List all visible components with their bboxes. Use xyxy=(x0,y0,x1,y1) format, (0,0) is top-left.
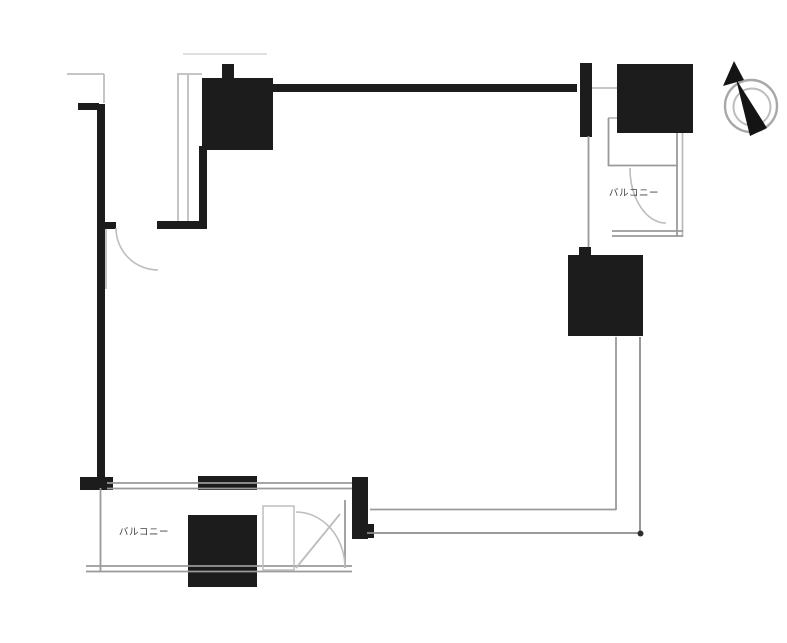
wall-interior-stub xyxy=(100,222,116,229)
door-leaf xyxy=(296,514,340,568)
wall-top xyxy=(268,84,577,92)
balcony-label-bottom-left: バルコニー xyxy=(119,527,169,538)
black-walls-and-pillars xyxy=(78,63,693,587)
door-swing-arc-entry xyxy=(116,228,158,270)
wall-below-pillar-top-left xyxy=(199,146,207,228)
north-arrow-icon xyxy=(723,61,777,136)
door-frame xyxy=(263,506,294,570)
floor-plan-canvas: バルコニー バルコニー xyxy=(0,0,787,643)
pillar-top-left-tab xyxy=(222,64,234,79)
wall-corner-bar-foot xyxy=(366,524,374,538)
wall-left xyxy=(97,104,105,490)
pillar-top-right xyxy=(617,64,693,133)
wall-left-top-foot xyxy=(78,103,99,110)
wall-interior-horizontal xyxy=(157,221,207,229)
pillar-mid-right xyxy=(568,255,643,336)
door-bottom-right xyxy=(263,500,345,570)
unit-slab-outline xyxy=(367,337,644,537)
pillar-bottom-left xyxy=(188,515,257,587)
wall-bar-top-right xyxy=(580,63,592,137)
corner-dot xyxy=(638,531,644,537)
floor-plan-svg: バルコニー バルコニー xyxy=(0,0,787,643)
wall-corner-bar xyxy=(352,477,368,539)
pillar-top-left xyxy=(202,78,273,150)
balcony-label-top-right: バルコニー xyxy=(609,188,659,199)
